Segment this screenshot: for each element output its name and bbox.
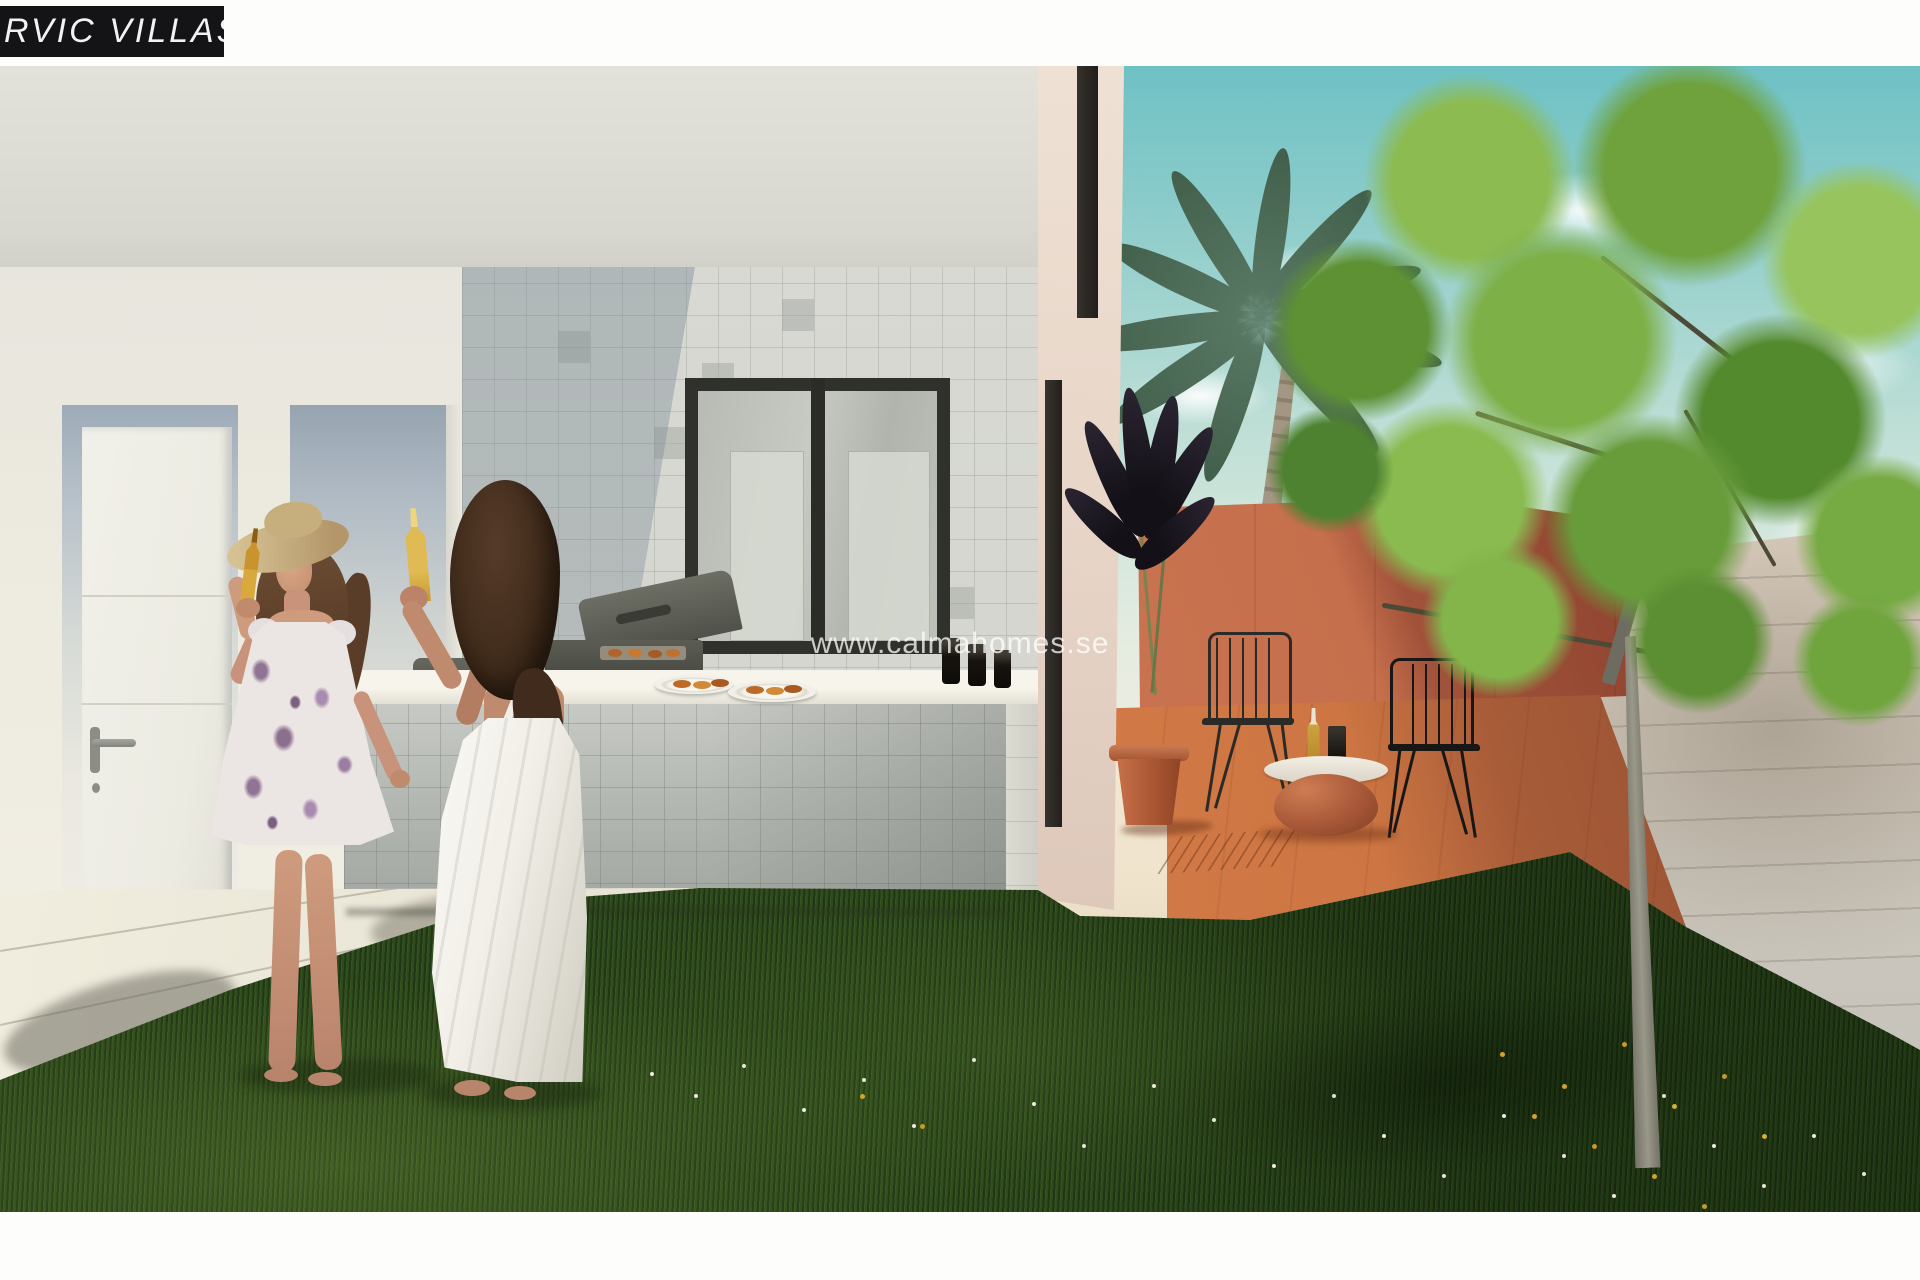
brand-label-text: RVIC VILLAS [0, 12, 224, 51]
woman-in-white-dress [392, 480, 592, 1120]
grill-tray [600, 646, 686, 660]
floral-dress [204, 622, 394, 845]
daisies-white [650, 1072, 654, 1076]
hair [450, 480, 560, 700]
brand-label: RVIC VILLAS [0, 6, 224, 57]
woman-in-floral-dress [178, 502, 418, 1102]
window-mullion [811, 378, 825, 654]
grilled-food [608, 649, 622, 657]
watermark: www.calmahomes.se [760, 627, 1160, 661]
door-handle [92, 739, 136, 747]
villa-upper-facade [0, 66, 1038, 269]
plate [655, 676, 733, 694]
white-maxi-dress [432, 718, 587, 1082]
side-window-slot [1077, 66, 1098, 318]
door-keyhole [92, 783, 100, 793]
plate [728, 682, 816, 702]
side-window-slot [1045, 380, 1062, 827]
door-handle-plate [90, 727, 100, 773]
villa-render-photo: www.calmahomes.se [0, 66, 1920, 1212]
garden-tree [1150, 66, 1920, 1212]
render-canvas: www.calmahomes.se RVIC VILLAS [0, 0, 1920, 1280]
